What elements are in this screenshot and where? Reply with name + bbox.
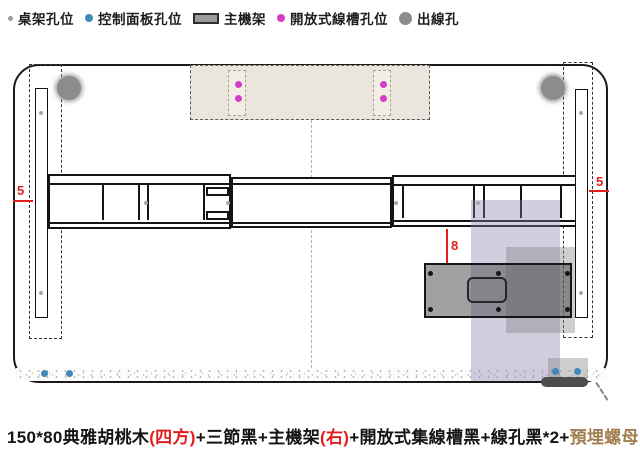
- beam-divider: [102, 185, 104, 220]
- legend-item-control-panel-holes: 控制面板孔位: [85, 8, 182, 28]
- legend-label-desk-frame-holes: 桌架孔位: [18, 8, 74, 28]
- beam-divider: [147, 185, 149, 220]
- beam-flange-line: [233, 222, 390, 224]
- legend-label-cable-tray-holes: 開放式線槽孔位: [290, 8, 388, 28]
- main-machine-bracket: [424, 263, 572, 318]
- bracket-inner-plate: [467, 277, 507, 303]
- product-caption: 150*80典雅胡桃木(四方)+三節黑+主機架(右)+開放式集線槽黑+線孔黑*2…: [7, 423, 639, 448]
- cable-tray-hole-icon: [277, 14, 285, 22]
- caption-segment-side: (右): [320, 428, 349, 447]
- edge-outlet-bar: [541, 377, 588, 387]
- cable-tray-mount-tab: [228, 70, 246, 116]
- right-leg-bar: [575, 89, 588, 318]
- leader-dashed-line: [595, 382, 608, 401]
- dimension-label-left: 5: [17, 183, 24, 198]
- legend-label-main-bracket: 主機架: [224, 8, 266, 28]
- beam-connector-prong: [206, 211, 229, 220]
- beam-divider: [560, 186, 562, 218]
- center-dashed-line: [311, 120, 312, 368]
- desk-frame-hole-icon: [8, 16, 13, 21]
- legend-item-main-bracket: 主機架: [193, 8, 266, 28]
- legend-label-control-panel-holes: 控制面板孔位: [98, 8, 182, 28]
- main-bracket-icon: [193, 13, 219, 24]
- caption-segment-size-material: 150*80典雅胡桃木: [7, 428, 149, 447]
- dimension-line-right: [589, 190, 609, 192]
- beam-divider: [138, 185, 140, 220]
- beam-divider: [402, 186, 404, 218]
- legend: 桌架孔位 控制面板孔位 主機架 開放式線槽孔位 出線孔: [8, 6, 459, 30]
- dimension-line-left: [13, 200, 33, 202]
- caption-segment-embedded-nut: 預埋螺母: [570, 428, 639, 447]
- open-cable-tray-region: [190, 65, 430, 120]
- outlet-backing-overlay: [548, 358, 588, 378]
- left-leg-bar: [35, 88, 48, 318]
- dimension-label-right: 5: [596, 174, 603, 189]
- legend-item-wire-outlet: 出線孔: [399, 8, 459, 28]
- dimension-line-bracket: [446, 229, 448, 263]
- wire-outlet-icon: [399, 12, 412, 25]
- beam-flange-line: [50, 222, 229, 224]
- legend-label-wire-outlet: 出線孔: [417, 8, 459, 28]
- beam-middle-tube: [231, 177, 392, 228]
- desk-hole-layout-diagram: 桌架孔位 控制面板孔位 主機架 開放式線槽孔位 出線孔: [0, 0, 640, 459]
- cable-tray-mount-tab: [373, 70, 391, 116]
- beam-divider: [203, 185, 205, 220]
- caption-segment-shape: (四方): [149, 428, 196, 447]
- caption-segment-accessories: +開放式集線槽黑+線孔黑*2+: [349, 428, 569, 447]
- caption-segment-frame: +三節黑+主機架: [196, 428, 320, 447]
- legend-item-desk-frame-holes: 桌架孔位: [8, 8, 74, 28]
- beam-flange-line: [233, 183, 390, 185]
- beam-left-section: [48, 174, 231, 229]
- control-panel-hole-icon: [85, 14, 93, 22]
- beam-connector-prong: [206, 187, 229, 196]
- dimension-label-bracket: 8: [451, 238, 458, 253]
- legend-item-cable-tray-holes: 開放式線槽孔位: [277, 8, 388, 28]
